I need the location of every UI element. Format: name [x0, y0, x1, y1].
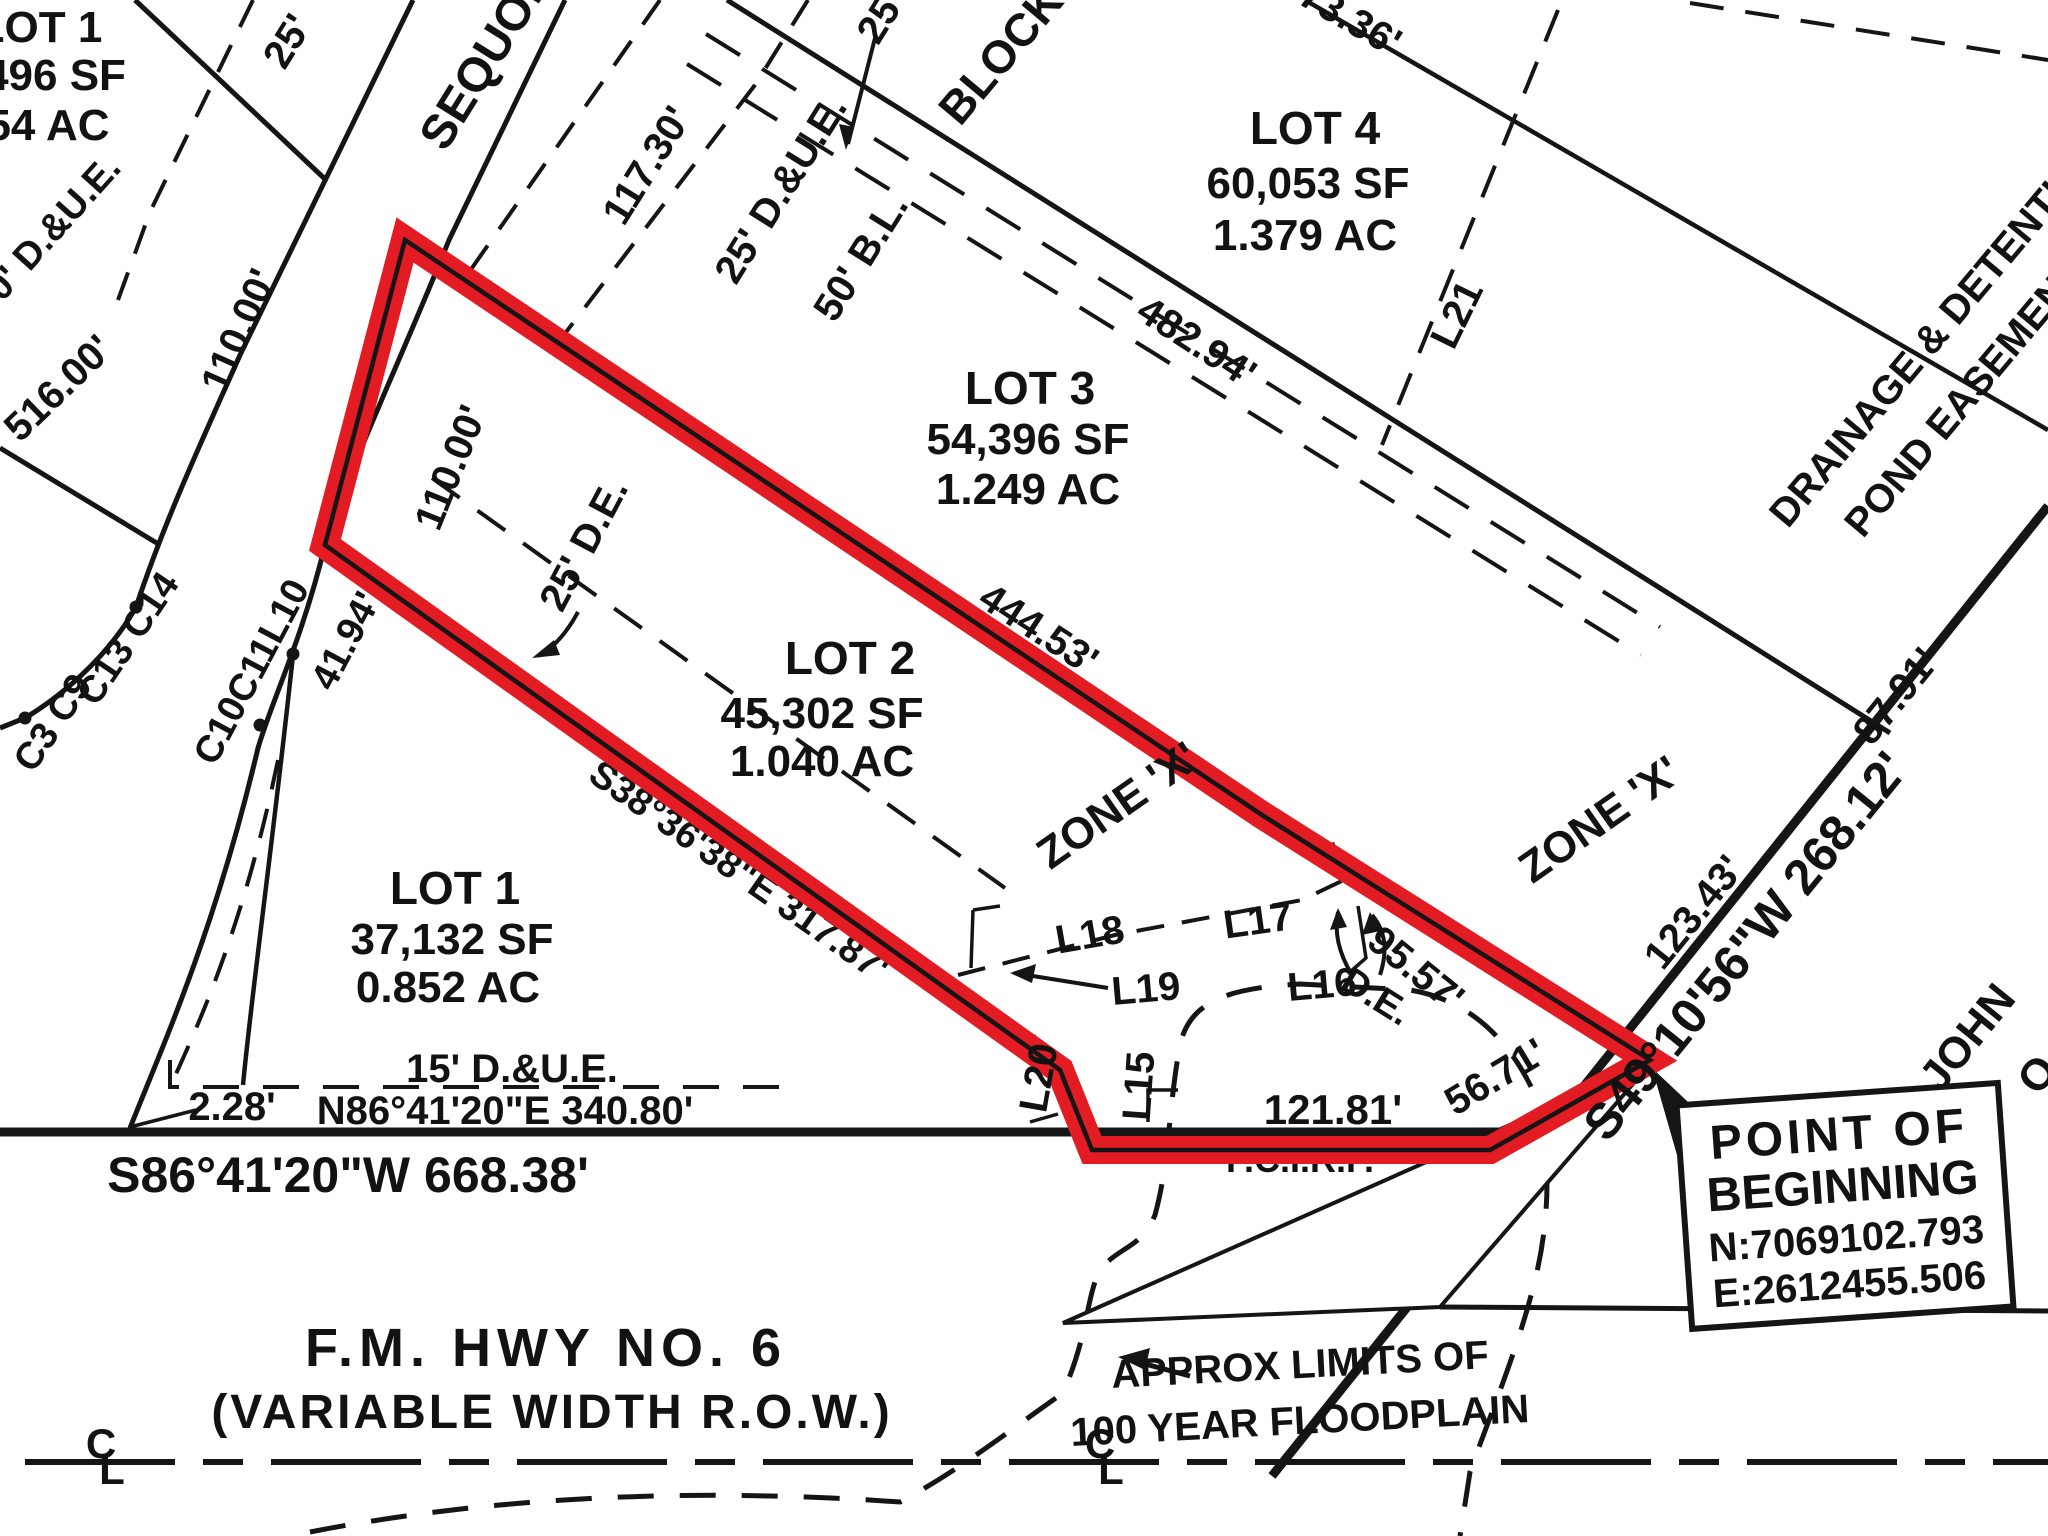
- d2-label: 2.28': [188, 1085, 275, 1129]
- lot2-name: LOT 2: [785, 632, 915, 684]
- d121-label: 121.81': [1264, 1086, 1402, 1133]
- lot1-north-bearing: N86°41'20"E 340.80': [317, 1089, 693, 1133]
- svg-text:L: L: [99, 1446, 125, 1493]
- south-hwy-bearing: S86°41'20"W 668.38': [107, 1147, 589, 1203]
- curve-node-dot: [254, 719, 267, 732]
- lot2-sf: 45,302 SF: [720, 689, 923, 738]
- lot4-name: LOT 4: [1250, 102, 1381, 154]
- due15-label: 15' D.&U.E.: [406, 1047, 618, 1091]
- pob-callout: POINT OF BEGINNING N:7069102.793 E:26124…: [1677, 1083, 2014, 1329]
- lot1-name: LOT 1: [390, 862, 520, 914]
- lot3-name: LOT 3: [965, 362, 1095, 414]
- plat-map-canvas: S38°36'38"E 317.87' F.C.I.R.F. LOT 1 496…: [0, 0, 2048, 1536]
- l15-label: L15: [1115, 1050, 1164, 1122]
- fm-hwy-row: (VARIABLE WIDTH R.O.W.): [211, 1386, 892, 1439]
- svg-text:L: L: [1098, 1446, 1124, 1493]
- lot3-ac: 1.249 AC: [936, 465, 1120, 514]
- fm-hwy-name: F.M. HWY NO. 6: [305, 1318, 787, 1378]
- lot1-sf: 37,132 SF: [350, 915, 553, 964]
- lot3-sf: 54,396 SF: [926, 415, 1129, 464]
- lot1-ac: 0.852 AC: [356, 963, 540, 1012]
- lot1tl-sf: 496 SF: [0, 51, 126, 100]
- lot1tl-ac: 54 AC: [0, 101, 110, 150]
- lot4-sf: 60,053 SF: [1206, 159, 1409, 208]
- l19-label: L19: [1110, 964, 1183, 1014]
- lot2-ac: 1.040 AC: [730, 737, 914, 786]
- curve-node-dot: [287, 648, 300, 661]
- lot4-ac: 1.379 AC: [1213, 211, 1397, 260]
- lot1tl-name: LOT 1: [0, 3, 102, 52]
